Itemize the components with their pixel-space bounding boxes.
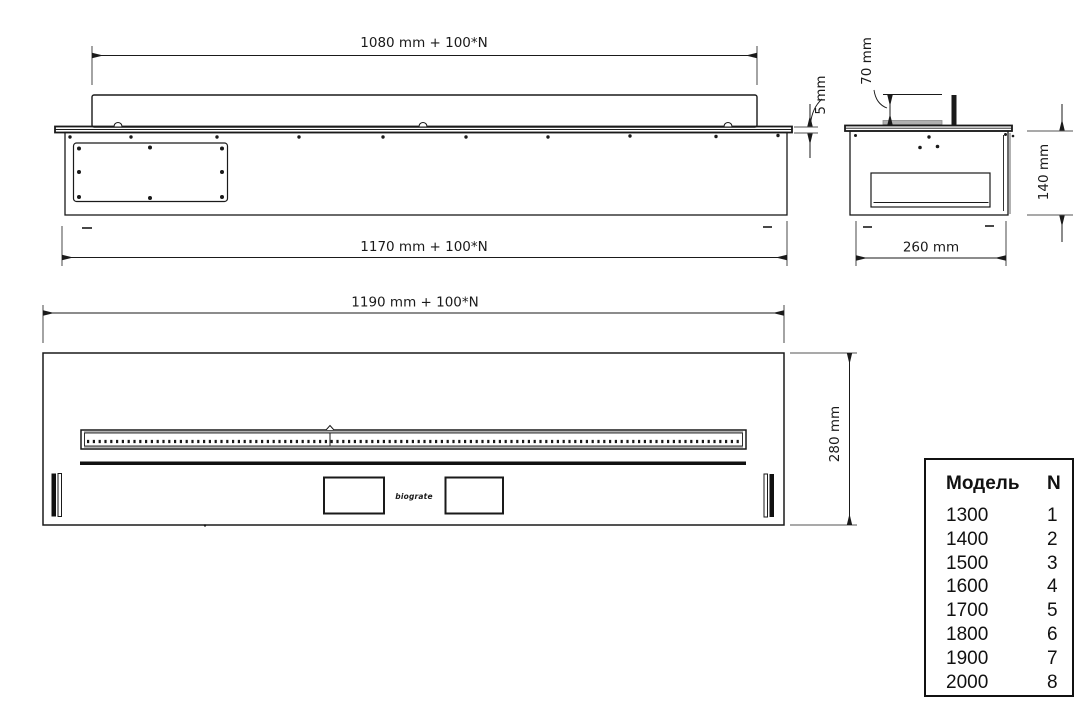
table-row: 1300 1: [946, 504, 1072, 528]
table-row: 1400 2: [946, 528, 1072, 552]
model-cell: 1800: [946, 623, 1047, 647]
table-row: 1500 3: [946, 552, 1072, 576]
model-column-header: Модель: [946, 473, 1047, 495]
end-burner-slot: [883, 121, 942, 125]
table-row: 1600 4: [946, 575, 1072, 599]
n-cell: 7: [1047, 647, 1058, 671]
plan-service-box-right: [446, 478, 504, 514]
side-view: 1080 mm + 100*N 1170 mm + 100*N 5 mm: [55, 35, 829, 266]
end-screw-holes: [854, 133, 1014, 149]
side-screw-holes: [68, 134, 779, 139]
side-body: [65, 133, 787, 216]
n-cell: 5: [1047, 599, 1058, 623]
model-table-header: Модель N: [946, 473, 1072, 495]
model-table: Модель N 1300 1 1400 2 1500 3 1600 4 170…: [924, 458, 1074, 697]
table-row: 2000 8: [946, 671, 1072, 695]
end-control-knob: [952, 95, 957, 125]
end-view: 70 mm 140 mm 260 mm: [845, 37, 1073, 266]
model-cell: 1400: [946, 528, 1047, 552]
model-cell: 1300: [946, 504, 1047, 528]
table-row: 1800 6: [946, 623, 1072, 647]
plate-bump: [724, 123, 732, 127]
dim-burner-height: 70 mm: [859, 37, 890, 125]
dim-side-top-width: 1080 mm + 100*N: [92, 35, 757, 85]
dim-label-70mm: 70 mm: [859, 37, 875, 85]
n-column-header: N: [1047, 473, 1061, 495]
dim-label-260mm: 260 mm: [903, 240, 959, 256]
n-cell: 2: [1047, 528, 1058, 552]
table-row: 1900 7: [946, 647, 1072, 671]
end-vent-window: [871, 173, 990, 207]
model-cell: 1900: [946, 647, 1047, 671]
brand-logo: biograte: [395, 492, 433, 501]
end-mounting-plate: [845, 126, 1012, 132]
dim-body-height: 140 mm: [1027, 104, 1073, 242]
model-cell: 1500: [946, 552, 1047, 576]
plan-right-bracket: [764, 474, 774, 517]
plan-service-box-left: [324, 478, 384, 514]
plate-bump: [419, 123, 427, 127]
table-row: 1700 5: [946, 599, 1072, 623]
dim-label-1080: 1080 mm + 100*N: [360, 35, 487, 51]
dim-label-1190: 1190 mm + 100*N: [351, 295, 478, 311]
plan-bottom-mark: [204, 524, 206, 526]
plan-heat-shield-line: [80, 462, 746, 466]
dim-label-1170: 1170 mm + 100*N: [360, 239, 487, 255]
plan-left-bracket: [52, 474, 62, 517]
dim-side-bottom-width: 1170 mm + 100*N: [62, 221, 787, 266]
model-cell: 2000: [946, 671, 1047, 695]
dim-label-280mm: 280 mm: [827, 406, 843, 462]
side-access-panel: [74, 143, 228, 202]
dim-plan-width: 1190 mm + 100*N: [43, 295, 784, 344]
n-cell: 4: [1047, 575, 1058, 599]
dim-body-depth: 260 mm: [856, 221, 1006, 266]
n-cell: 1: [1047, 504, 1058, 528]
strip-notch: [326, 426, 334, 431]
model-cell: 1600: [946, 575, 1047, 599]
dim-plan-depth: 280 mm: [790, 353, 857, 525]
dim-plate-thickness: 5 mm: [794, 75, 829, 158]
n-cell: 8: [1047, 671, 1058, 695]
technical-drawing-page: 1080 mm + 100*N 1170 mm + 100*N 5 mm: [0, 0, 1089, 712]
n-cell: 6: [1047, 623, 1058, 647]
model-cell: 1700: [946, 599, 1047, 623]
plate-bump: [114, 123, 122, 127]
dim-label-5mm: 5 mm: [813, 75, 829, 114]
dim-label-140mm: 140 mm: [1036, 144, 1052, 200]
n-cell: 3: [1047, 552, 1058, 576]
plan-view: biograte 1190 mm + 100*N 280 mm: [43, 295, 857, 527]
plan-burner-strip: [81, 426, 746, 450]
